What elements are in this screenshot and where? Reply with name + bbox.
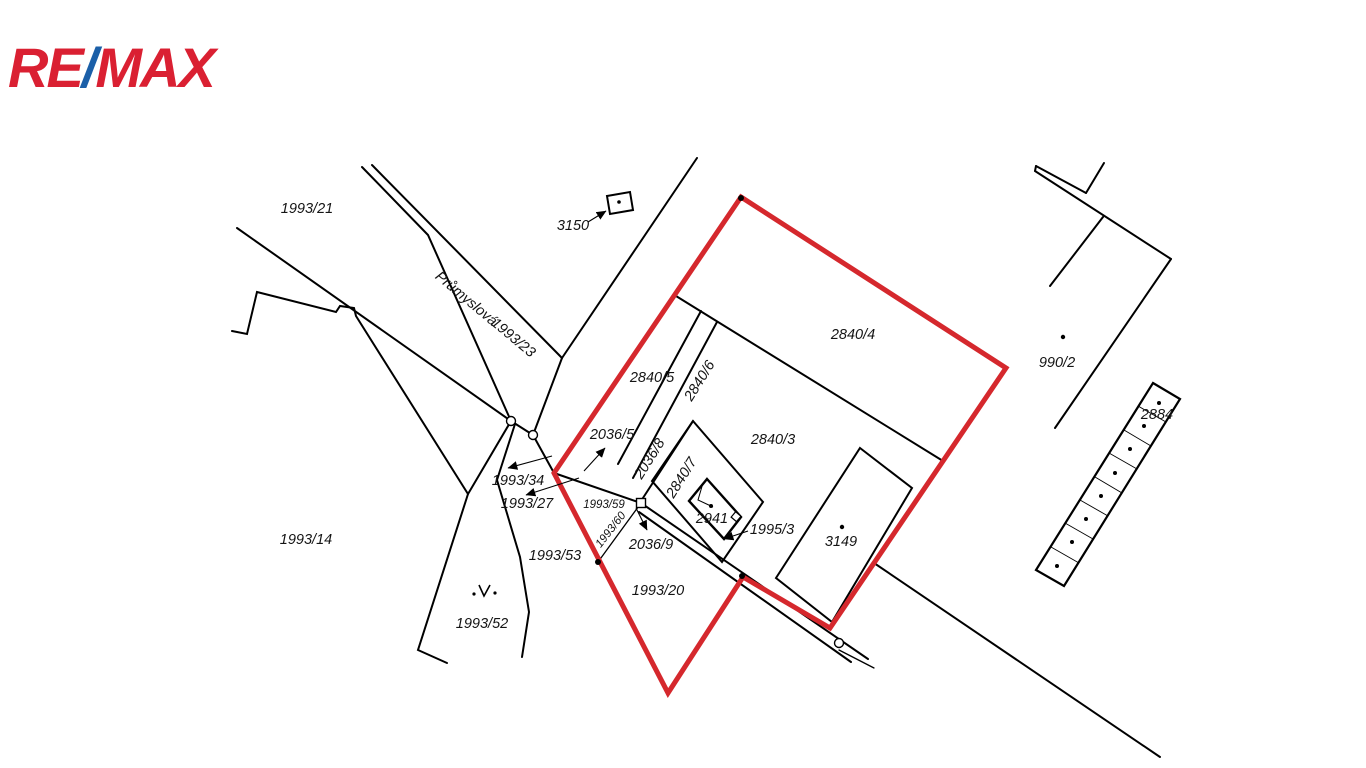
parcel-label-2036-9: 2036/9: [629, 537, 673, 553]
survey-circle-icon: [835, 639, 844, 648]
parcel-label-2941: 2941: [696, 511, 728, 527]
parcel-label-3150: 3150: [557, 218, 589, 234]
parcel-label-3149: 3149: [825, 534, 857, 550]
parcel-boundary-lines: [232, 158, 1171, 757]
boundary-dot-icon: [595, 559, 601, 565]
parcel-label-1993-14: 1993/14: [280, 532, 332, 548]
parcel-label-1995-3: 1995/3: [750, 522, 794, 538]
parcel-label-1993-53: 1993/53: [529, 548, 581, 564]
parcel-label-2884: 2884: [1141, 407, 1173, 423]
parcel-dot-icon: [1061, 335, 1065, 339]
parcel-label-1993-20: 1993/20: [632, 583, 684, 599]
survey-circle-icon: [507, 417, 516, 426]
survey-circle-icon: [529, 431, 538, 440]
parcel-label-1993-34: 1993/34: [492, 473, 544, 489]
survey-square-icon: [637, 499, 646, 508]
parcel-label-2840-5: 2840/5: [630, 370, 674, 386]
parcel-label-1993-27: 1993/27: [501, 496, 553, 512]
boundary-dot-icon: [739, 573, 745, 579]
parcel-label-1993-21: 1993/21: [281, 201, 333, 217]
boundary-dot-icon: [738, 195, 744, 201]
parcel-label-2840-3: 2840/3: [751, 432, 795, 448]
parcel-label-2036-5: 2036/5: [590, 427, 634, 443]
parcel-label-2840-4: 2840/4: [831, 327, 875, 343]
parcel-label-990-2: 990/2: [1039, 355, 1075, 371]
building-2941: [689, 479, 741, 539]
cadastral-map-canvas: [0, 0, 1366, 768]
vegetation-symbol-icon: [472, 585, 496, 596]
parcel-label-1993-52: 1993/52: [456, 616, 508, 632]
cadastral-map-page: RE/MAX: [0, 0, 1366, 768]
building-3150: [607, 192, 633, 214]
